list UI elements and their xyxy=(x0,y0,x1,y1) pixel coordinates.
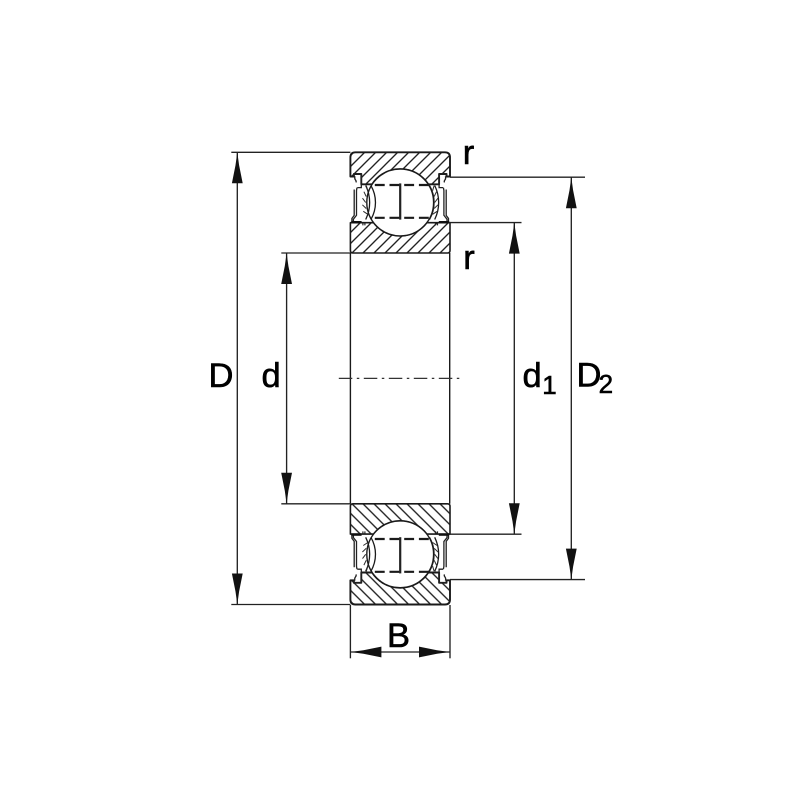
svg-text:r: r xyxy=(463,239,475,277)
svg-text:d: d xyxy=(262,357,281,395)
svg-text:1: 1 xyxy=(542,370,556,400)
svg-text:2: 2 xyxy=(599,369,613,399)
svg-text:d: d xyxy=(523,357,542,395)
svg-text:D: D xyxy=(209,357,234,395)
svg-text:r: r xyxy=(463,134,475,172)
svg-text:B: B xyxy=(387,617,410,655)
